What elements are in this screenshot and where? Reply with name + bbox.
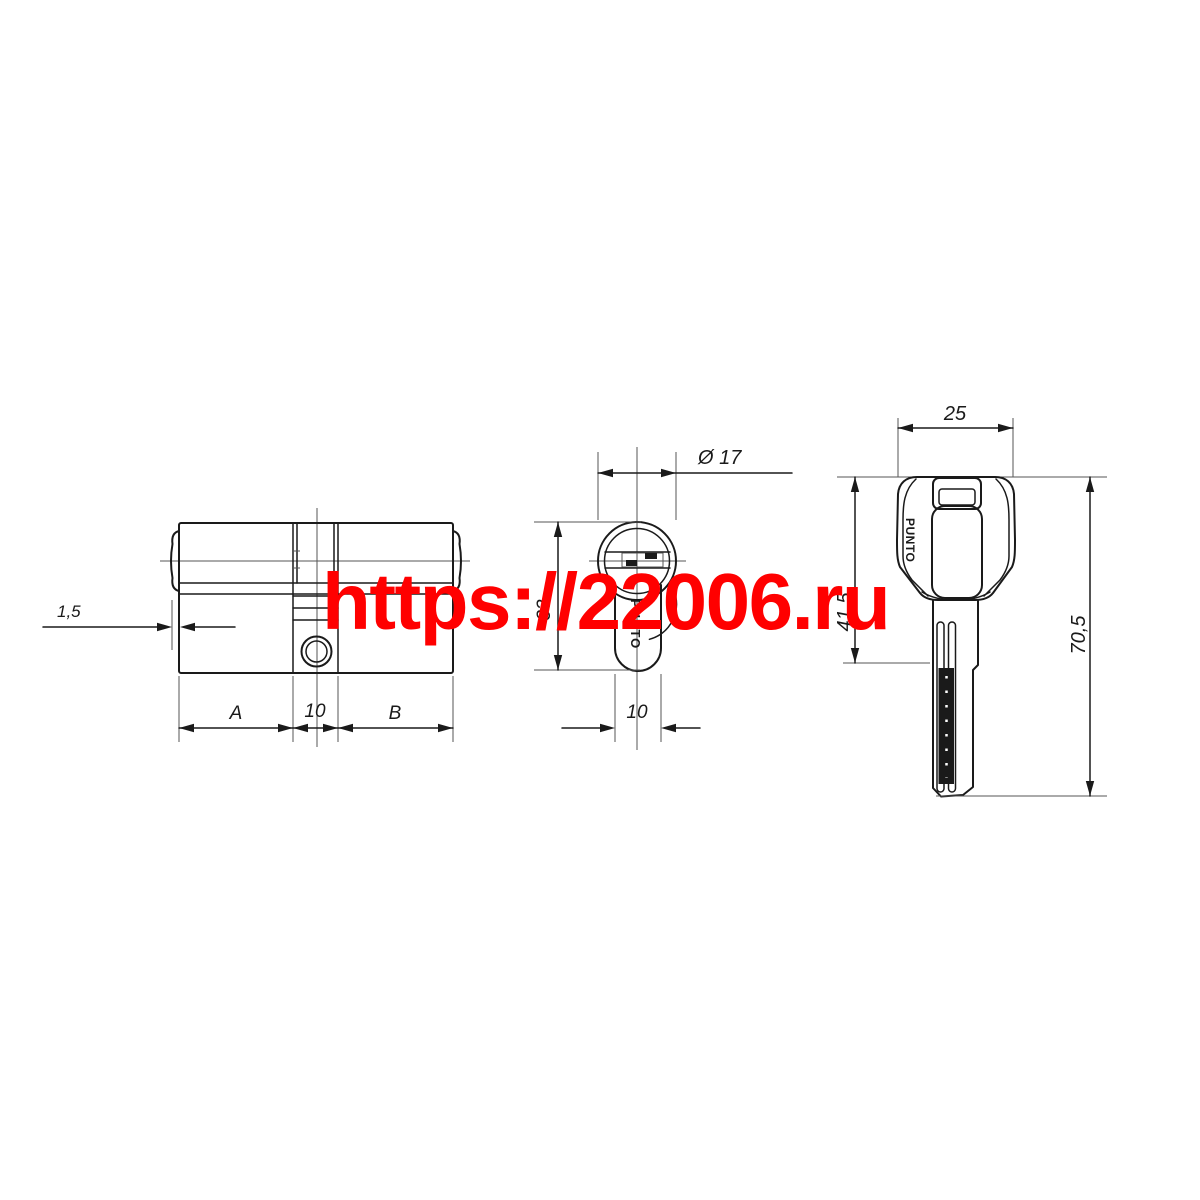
blade-milling-band (939, 668, 955, 784)
arrowhead (180, 623, 195, 631)
arrowhead (661, 724, 676, 732)
ext-lines (898, 418, 1013, 477)
dimension-a-10-b: A 10 B (179, 676, 453, 742)
dim-b-label: B (389, 703, 402, 724)
arrowhead (600, 724, 615, 732)
dimension-lip: 1,5 (43, 600, 235, 650)
arrowhead (898, 424, 913, 432)
arrowhead (998, 424, 1013, 432)
arrowhead (338, 724, 353, 732)
technical-drawing-page: 1,5 A 10 B PUNTO (0, 0, 1200, 1200)
arrowhead (661, 469, 676, 477)
head-facet-right (984, 479, 1009, 596)
dim-head-width-label: 25 (943, 403, 967, 425)
dimension-total-length: 70,5 (936, 477, 1107, 796)
arrowhead (179, 724, 194, 732)
arrowhead (851, 648, 859, 663)
arrowhead (293, 724, 308, 732)
dim-diameter-label: Ø 17 (697, 447, 742, 469)
brand-text: PUNTO (903, 518, 917, 562)
arrowhead (278, 724, 293, 732)
arrowhead (598, 469, 613, 477)
arrowhead (438, 724, 453, 732)
dimension-head-width: 25 (898, 403, 1013, 477)
arrowhead (554, 522, 562, 537)
dim-lip-label: 1,5 (57, 602, 81, 621)
dim-width-label: 10 (626, 702, 648, 723)
head-insert (932, 506, 982, 598)
dimension-width: 10 (562, 674, 700, 742)
arrowhead (1086, 781, 1094, 796)
dim-a-label: A (229, 703, 243, 724)
arrowhead (554, 655, 562, 670)
head-top-tab-inner (939, 489, 975, 505)
dimension-diameter: Ø 17 (598, 447, 792, 520)
arrowhead (323, 724, 338, 732)
dim-total-length-label: 70,5 (1068, 615, 1090, 655)
dim-10-label: 10 (304, 701, 326, 722)
arrowhead (1086, 477, 1094, 492)
arrowhead (851, 477, 859, 492)
watermark-url: https://22006.ru (322, 562, 889, 642)
arrowhead (157, 623, 172, 631)
